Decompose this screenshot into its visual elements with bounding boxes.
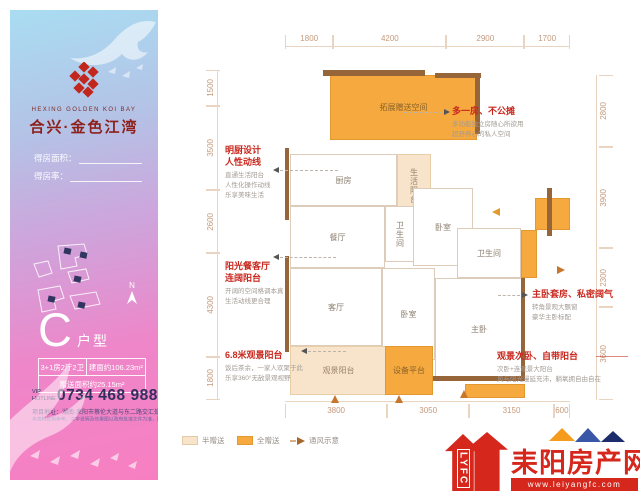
dim-label: 1800 (300, 34, 318, 43)
legend-ventilation: 通风示意 (290, 435, 339, 446)
hotline-number: 0734 468 9888 (57, 387, 158, 405)
dim-label: 2900 (476, 34, 494, 43)
annotation-desc: 多功能独立房随心所欲用 (452, 120, 524, 130)
rate-field: 得房率： (34, 170, 142, 182)
roof-icon (575, 428, 601, 442)
spec-area: 建面约106.23m² (87, 359, 145, 375)
room-bath-2: 卫生间 (457, 228, 521, 278)
annotation-desc: 次卧+连观景大阳台 (497, 365, 601, 375)
legend-half-swatch (182, 436, 198, 445)
room-dining: 餐厅 (290, 206, 385, 268)
legend-half-gift: 半赠送 (182, 435, 225, 446)
leiyangfc-logo: LYFC 耒阳房产网 www.leiyangfc.com (445, 428, 638, 491)
rate-field-line (70, 172, 142, 182)
legend-full-swatch (237, 436, 253, 445)
leader-line (280, 170, 338, 171)
compass: N (126, 282, 138, 305)
brand-logo-icon (62, 62, 106, 98)
annotation-view-balcony: 6.8米观景阳台 饭后茶余，一家人欢聚于此 乐享360°无敌景观视野 (225, 349, 303, 384)
dim-label: 3500 (206, 139, 215, 157)
room-living: 客厅 (290, 268, 382, 346)
annotation-title: 主卧套房、私密阔气 (532, 288, 613, 300)
dim-label: 3050 (419, 406, 437, 415)
room-label: 卫生间 (477, 248, 501, 259)
dim-label: 3150 (503, 406, 521, 415)
annotation-dining: 阳光餐客厅 连阔阳台 开阔的空间格调本真 生活动线更合理 (225, 260, 284, 307)
dim-label: 1800 (206, 369, 215, 387)
room-label: 设备平台 (393, 365, 425, 376)
disclaimer-text: 本资料仅供参考，文字说明及效果图以政府批准文件为准，图为示意。 (32, 415, 130, 422)
site-name: 耒阳房产网 (511, 441, 640, 480)
vent-legend-arrow-icon (297, 437, 305, 445)
dim-label: 4300 (206, 296, 215, 314)
dim-label: 2800 (599, 102, 608, 120)
brand-logo: HEXING GOLDEN KOI BAY 合兴·金色江湾 (10, 62, 158, 137)
hotline-label: VIP HOTLINE (32, 389, 54, 402)
area-field: 得房面积： (34, 152, 142, 164)
legend-full-gift: 全赠送 (237, 435, 280, 446)
leader-arrow-icon (301, 348, 307, 354)
annotation-desc: 人性化操作动线 (225, 181, 271, 191)
annotation-title: 明厨设计 (225, 145, 261, 155)
brand-name-en: HEXING GOLDEN KOI BAY (10, 107, 158, 113)
annotation-kitchen: 明厨设计 人性动线 直通生活阳台 人性化操作动线 乐享美味生活 (225, 144, 271, 201)
annotation-bonus-room: 多一房、不公摊 多功能独立房随心所欲用 超舒养心的私人空间 (452, 105, 524, 140)
vent-arrow-icon (557, 266, 565, 274)
wall-segment (547, 188, 552, 236)
dim-label: 3800 (327, 406, 345, 415)
annotation-rule-line (596, 356, 628, 357)
unit-type-heading: C户型 (38, 306, 109, 353)
compass-arrow-icon (126, 291, 138, 305)
leader-arrow-icon (444, 109, 450, 115)
leader-line (404, 112, 442, 113)
annotation-desc: 直通生活阳台 (225, 171, 271, 181)
room-equipment-platform: 设备平台 (385, 346, 433, 395)
annotation-title: 阳光餐客厅 (225, 261, 270, 271)
brand-panel: HEXING GOLDEN KOI BAY 合兴·金色江湾 得房面积： 得房率： (10, 10, 158, 480)
dim-label: 3900 (599, 189, 608, 207)
room-label: 餐厅 (330, 232, 346, 243)
site-url: www.leiyangfc.com (511, 478, 638, 491)
area-field-label: 得房面积： (34, 152, 77, 164)
annotation-title: 观景次卧、自带阳台 (497, 350, 601, 362)
dimension-chain-top: 1800 4200 2900 1700 (285, 33, 570, 47)
dim-label: 2600 (206, 213, 215, 231)
leader-arrow-icon (522, 292, 528, 298)
vent-arrow-icon (460, 390, 468, 398)
vent-arrow-icon (395, 395, 403, 403)
legend-label: 半赠送 (202, 435, 225, 446)
annotation-title: 6.8米观景阳台 (225, 349, 303, 361)
annotation-desc: 转角景观大飘窗 (532, 303, 613, 313)
roof-icon (549, 428, 575, 441)
leader-line (280, 257, 336, 258)
wall-segment (323, 70, 425, 76)
dim-label: 1500 (206, 79, 215, 97)
legend-label: 通风示意 (309, 435, 339, 446)
wall-segment (285, 148, 289, 220)
dimension-chain-bottom: 3800 3050 3150 600 (285, 401, 570, 415)
annotation-desc: 乐享360°无敌景观视野 (225, 374, 303, 384)
room-label: 客厅 (328, 302, 344, 313)
dim-label: 2300 (599, 269, 608, 287)
room-label: 观景阳台 (323, 365, 355, 376)
rate-field-label: 得房率： (34, 170, 68, 182)
annotation-desc: 风与阳光漫延充沛，躺氧拥自由自在 (497, 375, 601, 385)
room-kitchen: 厨房 (290, 154, 397, 206)
annotation-desc: 饭后茶余，一家人欢聚于此 (225, 364, 303, 374)
gift-area-piece (535, 198, 570, 230)
wall-segment (285, 256, 289, 352)
legend-label: 全赠送 (257, 435, 280, 446)
annotation-master: 主卧套房、私密阔气 转角景观大飘窗 豪华主卧标配 (532, 288, 613, 323)
room-bath-1: 卫生间 (385, 206, 415, 262)
poster: HEXING GOLDEN KOI BAY 合兴·金色江湾 得房面积： 得房率： (0, 0, 640, 494)
room-label: 卧室 (401, 309, 417, 320)
annotation-desc: 生活动线更合理 (225, 297, 284, 307)
hotline: VIP HOTLINE 0734 468 9888 (32, 387, 158, 405)
leader-line (308, 351, 346, 352)
annotation-title: 多一房、不公摊 (452, 105, 524, 117)
gift-area-piece (465, 384, 525, 398)
spec-layout: 3+1房2厅2卫 (39, 359, 87, 375)
vent-legend-icon (290, 440, 296, 442)
compass-n-label: N (129, 281, 135, 290)
annotation-title: 人性动线 (225, 157, 261, 167)
area-field-line (79, 154, 142, 164)
room-label: 主卧 (471, 324, 487, 335)
dim-label: 1700 (538, 34, 556, 43)
vent-arrow-icon (331, 395, 339, 403)
annotation-title: 连阔阳台 (225, 273, 261, 283)
leader-arrow-icon (273, 254, 279, 260)
annotation-desc: 乐享美味生活 (225, 191, 271, 201)
room-label: 厨房 (336, 175, 352, 186)
leader-arrow-icon (273, 167, 279, 173)
lyfc-text: LYFC (457, 449, 470, 488)
annotation-desc: 超舒养心的私人空间 (452, 130, 524, 140)
dim-label: 4200 (381, 34, 399, 43)
vent-arrow-icon (492, 208, 500, 216)
annotation-second-bedroom: 观景次卧、自带阳台 次卧+连观景大阳台 风与阳光漫延充沛，躺氧拥自由自在 (497, 350, 601, 385)
annotation-desc: 开阔的空间格调本真 (225, 287, 284, 297)
dim-label: 600 (555, 406, 568, 415)
gift-area-piece (521, 230, 537, 278)
brand-name-cn: 合兴·金色江湾 (10, 116, 158, 137)
leader-line (498, 295, 520, 296)
unit-type-suffix: 户型 (77, 333, 109, 349)
annotation-desc: 豪华主卧标配 (532, 313, 613, 323)
dimension-chain-left: 1500 3500 2600 4300 1800 (204, 70, 218, 400)
unit-type-letter: C (38, 303, 72, 356)
room-label: 卫生间 (395, 221, 406, 248)
room-label: 卧室 (435, 222, 451, 233)
